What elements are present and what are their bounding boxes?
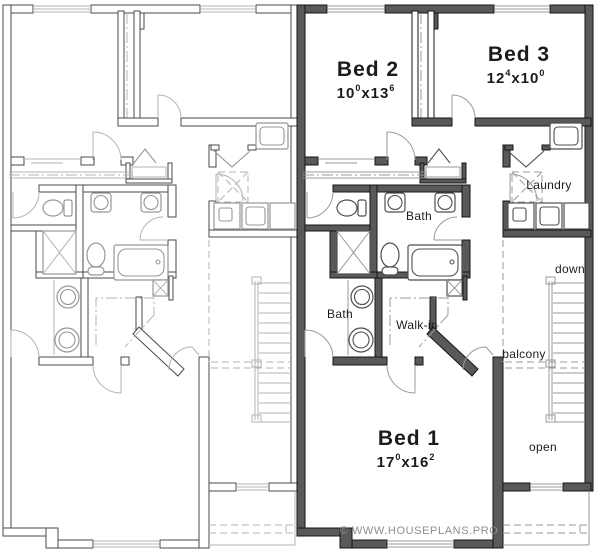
room-dim-bed1: 170x162 <box>377 453 436 471</box>
room-label-laundry: Laundry <box>526 178 571 192</box>
room-dim-bed2: 100x136 <box>337 84 396 102</box>
unit-left <box>3 5 299 548</box>
room-label-bed2: Bed 2 <box>337 58 399 82</box>
room-label-walk-in: Walk-in <box>396 318 438 332</box>
room-label-bath-master: Bath <box>327 307 353 321</box>
room-label-bed3: Bed 3 <box>488 43 550 67</box>
room-label-bath-upper: Bath <box>406 209 432 223</box>
watermark-text: © WWW.HOUSEPLANS.PRO <box>340 525 499 537</box>
balcony-label: balcony <box>502 347 545 361</box>
room-label-bed1: Bed 1 <box>378 427 440 451</box>
stairs-down-label: down <box>555 262 585 276</box>
room-dim-bed3: 124x100 <box>487 69 546 87</box>
floor-plan-canvas: Bed 2 100x136 Bed 3 124x100 Bed 1 170x16… <box>0 0 600 554</box>
open-below-label: open <box>529 440 557 454</box>
